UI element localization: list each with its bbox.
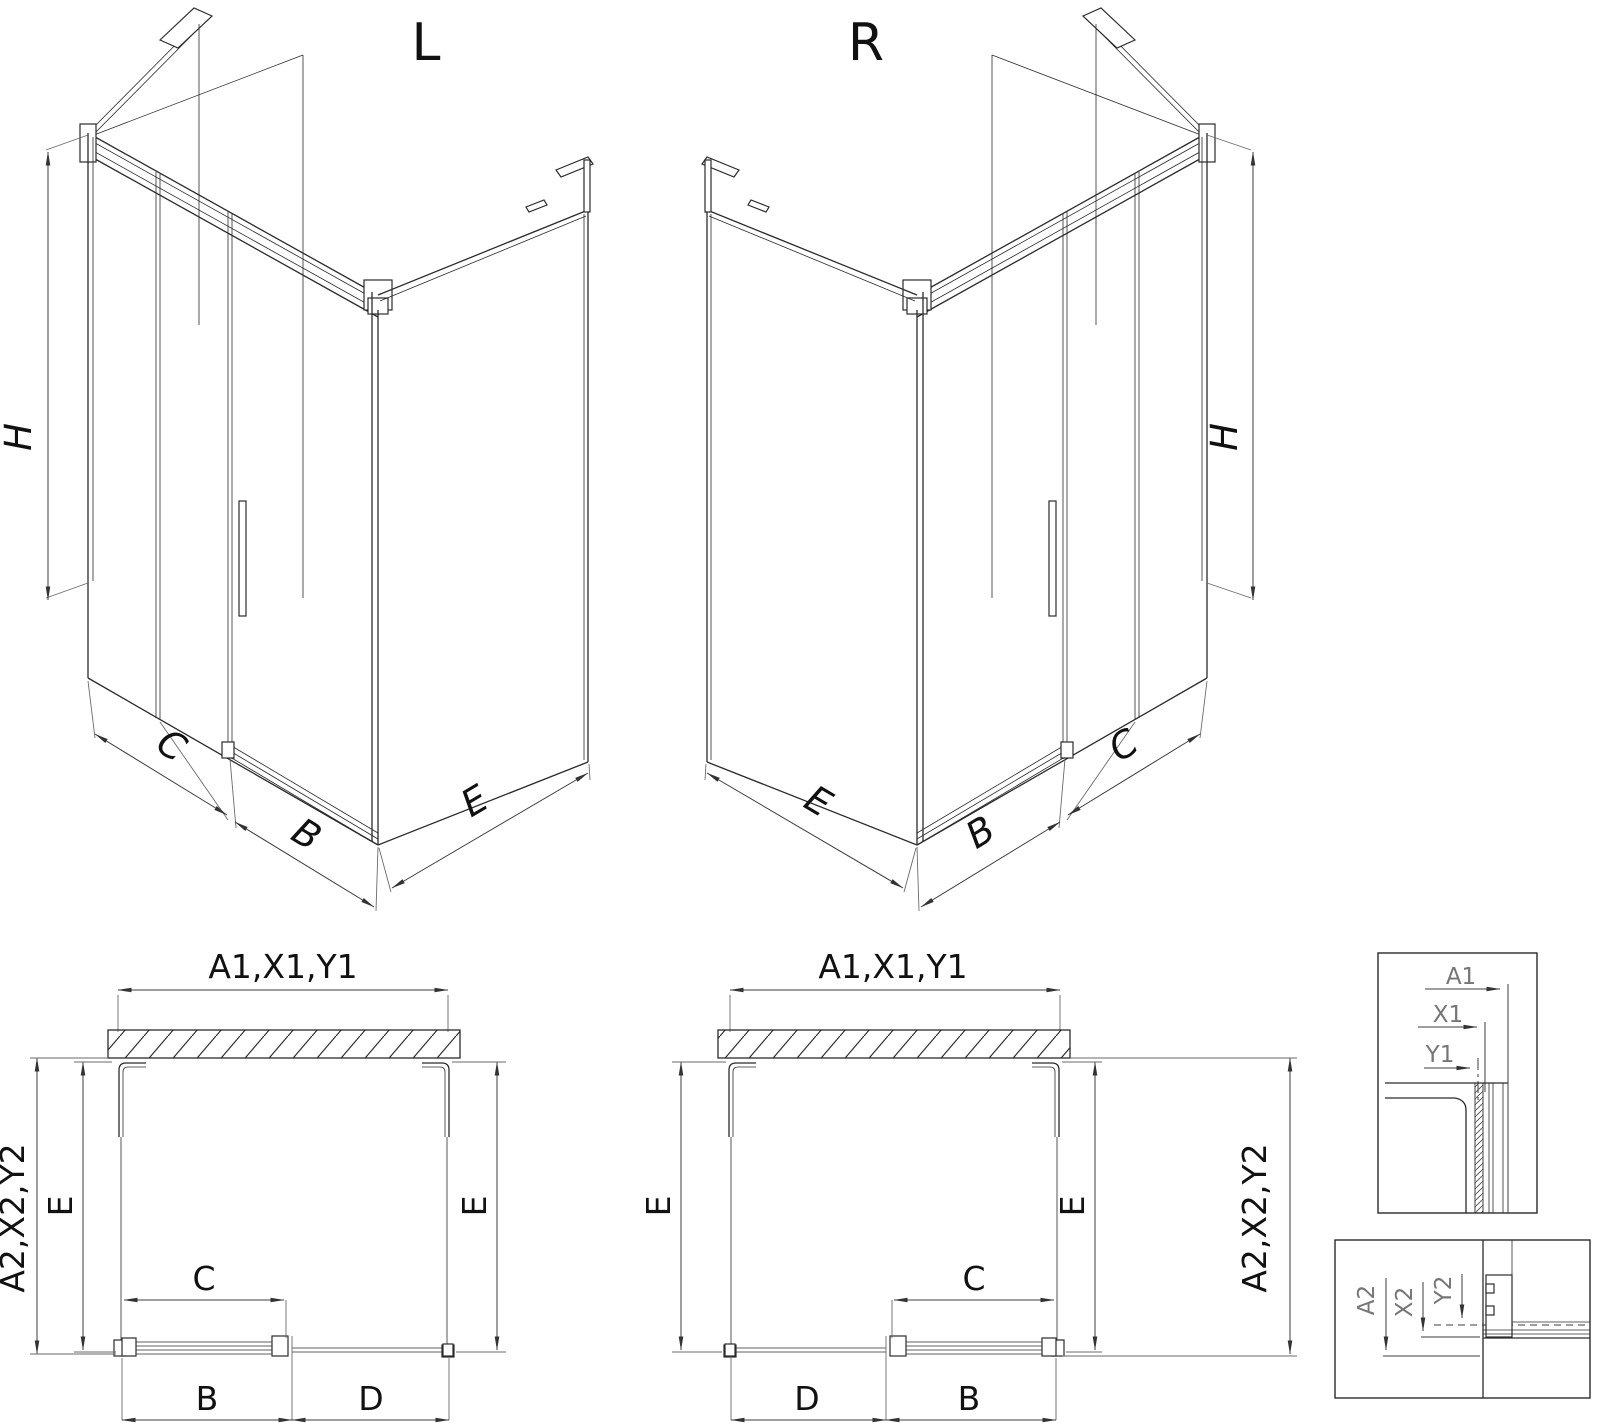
detail-inset-bottom-profile: A2 X2 Y2 <box>1335 1240 1590 1398</box>
detail-inset-top-profile: A1 X1 Y1 <box>1378 953 1537 1213</box>
plan-right-e-right: E <box>1053 1196 1092 1217</box>
wall-section-right <box>718 1030 1070 1058</box>
iso-right-dimensions: H C B E <box>705 135 1253 911</box>
iso-right-side-panel <box>702 157 917 845</box>
iso-view-left: L <box>0 8 593 911</box>
plan-right-outer-dim: A2,X2,Y2 <box>1235 1143 1274 1292</box>
plan-left-top-dim: A1,X1,Y1 <box>208 947 357 986</box>
technical-drawing-sheet: L <box>0 0 1600 1423</box>
iso-left-top-rail <box>80 124 392 317</box>
detail-y1-label: Y1 <box>1425 1042 1455 1068</box>
shower-enclosure-diagram: L <box>0 0 1600 1423</box>
detail-y2-label: Y2 <box>1431 1276 1457 1306</box>
plan-view-left: A1,X1,Y1 E <box>0 947 506 1420</box>
detail-x1-label: X1 <box>1433 1002 1463 1028</box>
plan-left-c-dim: C <box>192 1259 215 1298</box>
plan-right-glass <box>724 1063 1064 1420</box>
plan-left-b-dim: B <box>196 1379 219 1418</box>
plan-left-d-dim: D <box>358 1379 383 1418</box>
plan-view-right: A1,X1,Y1 E <box>639 947 1297 1420</box>
wall-section-left <box>108 1030 460 1058</box>
dim-b-left: B <box>284 809 328 859</box>
iso-right-front-face <box>917 133 1207 845</box>
iso-right-bottom-track <box>917 742 1073 845</box>
iso-right-top-rail <box>903 124 1215 317</box>
plan-right-e-left: E <box>639 1196 678 1217</box>
plan-right-top-dim: A1,X1,Y1 <box>818 947 967 986</box>
dim-h-right: H <box>1203 423 1246 451</box>
dim-h-left: H <box>0 423 40 451</box>
plan-left-outer-dim: A2,X2,Y2 <box>0 1143 32 1292</box>
detail-a1-label: A1 <box>1446 964 1476 990</box>
detail-a2-label: A2 <box>1354 1285 1380 1315</box>
plan-left-e-left: E <box>41 1196 80 1217</box>
dim-c-left: C <box>149 720 194 770</box>
iso-view-right: R <box>702 8 1253 911</box>
dim-c-right: C <box>1101 720 1146 770</box>
plan-left-glass <box>114 1063 454 1420</box>
iso-left-back-panel <box>94 55 303 598</box>
iso-left-title: L <box>412 13 441 73</box>
iso-left-front-face <box>88 133 378 845</box>
dim-e-right: E <box>797 777 840 826</box>
plan-right-b-dim: B <box>958 1379 981 1418</box>
dim-b-right: B <box>958 807 1002 857</box>
door-handle-left <box>239 501 246 616</box>
plan-left-e-right: E <box>455 1196 494 1217</box>
detail-x2-label: X2 <box>1392 1287 1418 1317</box>
plan-left-dimensions: E A2,X2,Y2 E C B D <box>0 1058 506 1420</box>
plan-right-c-dim: C <box>962 1259 985 1298</box>
door-handle-right <box>1049 501 1056 616</box>
iso-left-side-panel <box>378 157 593 845</box>
plan-right-dimensions: E E A2,X2,Y2 C D B <box>639 1058 1297 1420</box>
plan-right-d-dim: D <box>794 1379 819 1418</box>
iso-right-back-panel <box>992 55 1201 598</box>
iso-right-title: R <box>848 13 884 73</box>
